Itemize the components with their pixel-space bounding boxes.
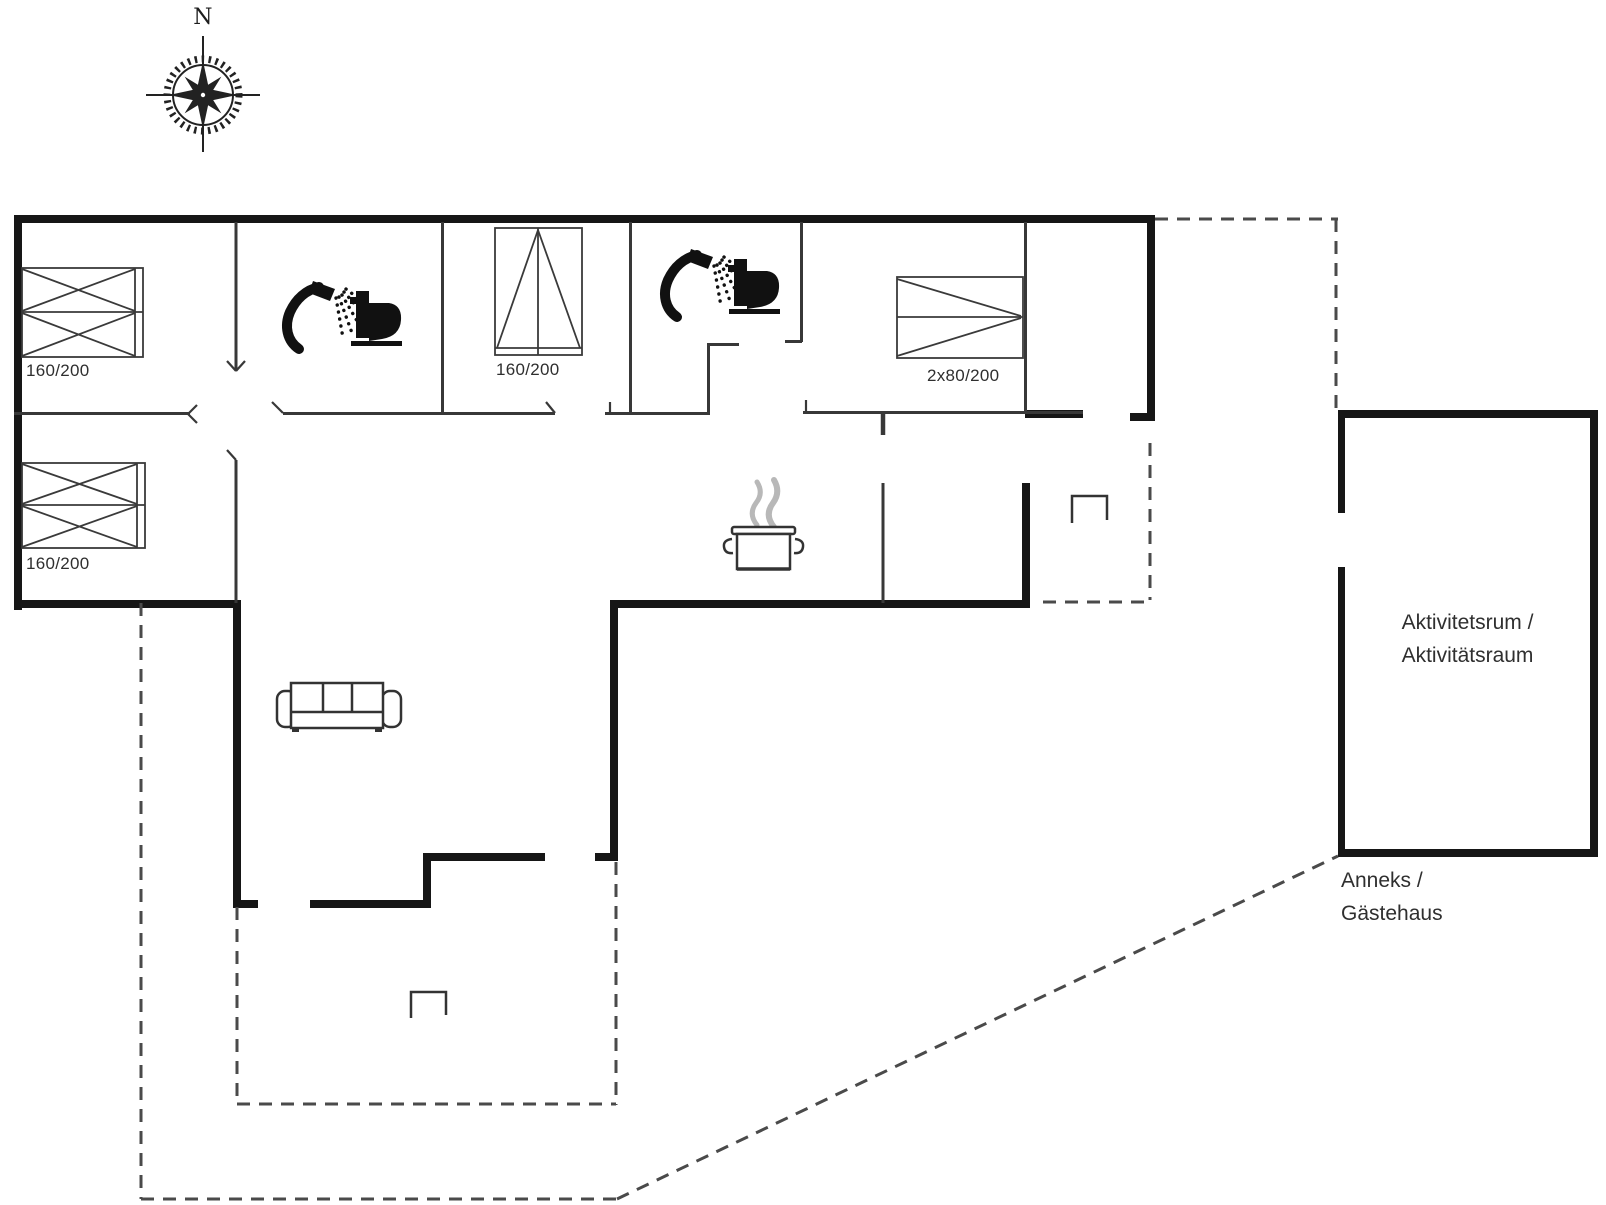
sofa-icon xyxy=(277,683,401,732)
bed-size-label: 160/200 xyxy=(26,361,90,381)
double-bed-icon-top-left xyxy=(22,268,143,357)
bed-size-label: 160/200 xyxy=(26,554,90,574)
stove-bracket-icon xyxy=(411,992,446,1018)
double-bed-icon-bottom-left xyxy=(22,463,145,548)
compass-north-label: N xyxy=(188,5,218,30)
cooking-pot-icon xyxy=(724,480,803,569)
annex-label-line2: Gästehaus xyxy=(1341,897,1443,930)
annex-label: Anneks / Gästehaus xyxy=(1341,864,1443,930)
activity-room-label: Aktivitetsrum / Aktivitätsraum xyxy=(1345,606,1590,672)
toilet-icon xyxy=(728,259,780,314)
bathroom1-icons xyxy=(287,281,402,349)
bed-size-label: 160/200 xyxy=(496,360,560,380)
annex-label-line1: Anneks / xyxy=(1341,864,1443,897)
wardrobe-bed-icon xyxy=(495,228,582,355)
double-bed-icon-right xyxy=(897,277,1023,358)
toilet-icon xyxy=(350,291,402,346)
floor-plan-drawing xyxy=(0,0,1606,1205)
floor-plan-page: N 160/200 160/200 160/200 2x80/200 Aktiv… xyxy=(0,0,1606,1205)
compass-rose-icon xyxy=(146,36,260,152)
bathroom2-icons xyxy=(665,249,780,317)
bed-size-label: 2x80/200 xyxy=(927,366,999,386)
stove-bracket-icons xyxy=(411,496,1107,1018)
activity-room-label-line2: Aktivitätsraum xyxy=(1345,639,1590,672)
stove-bracket-icon xyxy=(1072,496,1107,523)
activity-room-label-line1: Aktivitetsrum / xyxy=(1345,606,1590,639)
